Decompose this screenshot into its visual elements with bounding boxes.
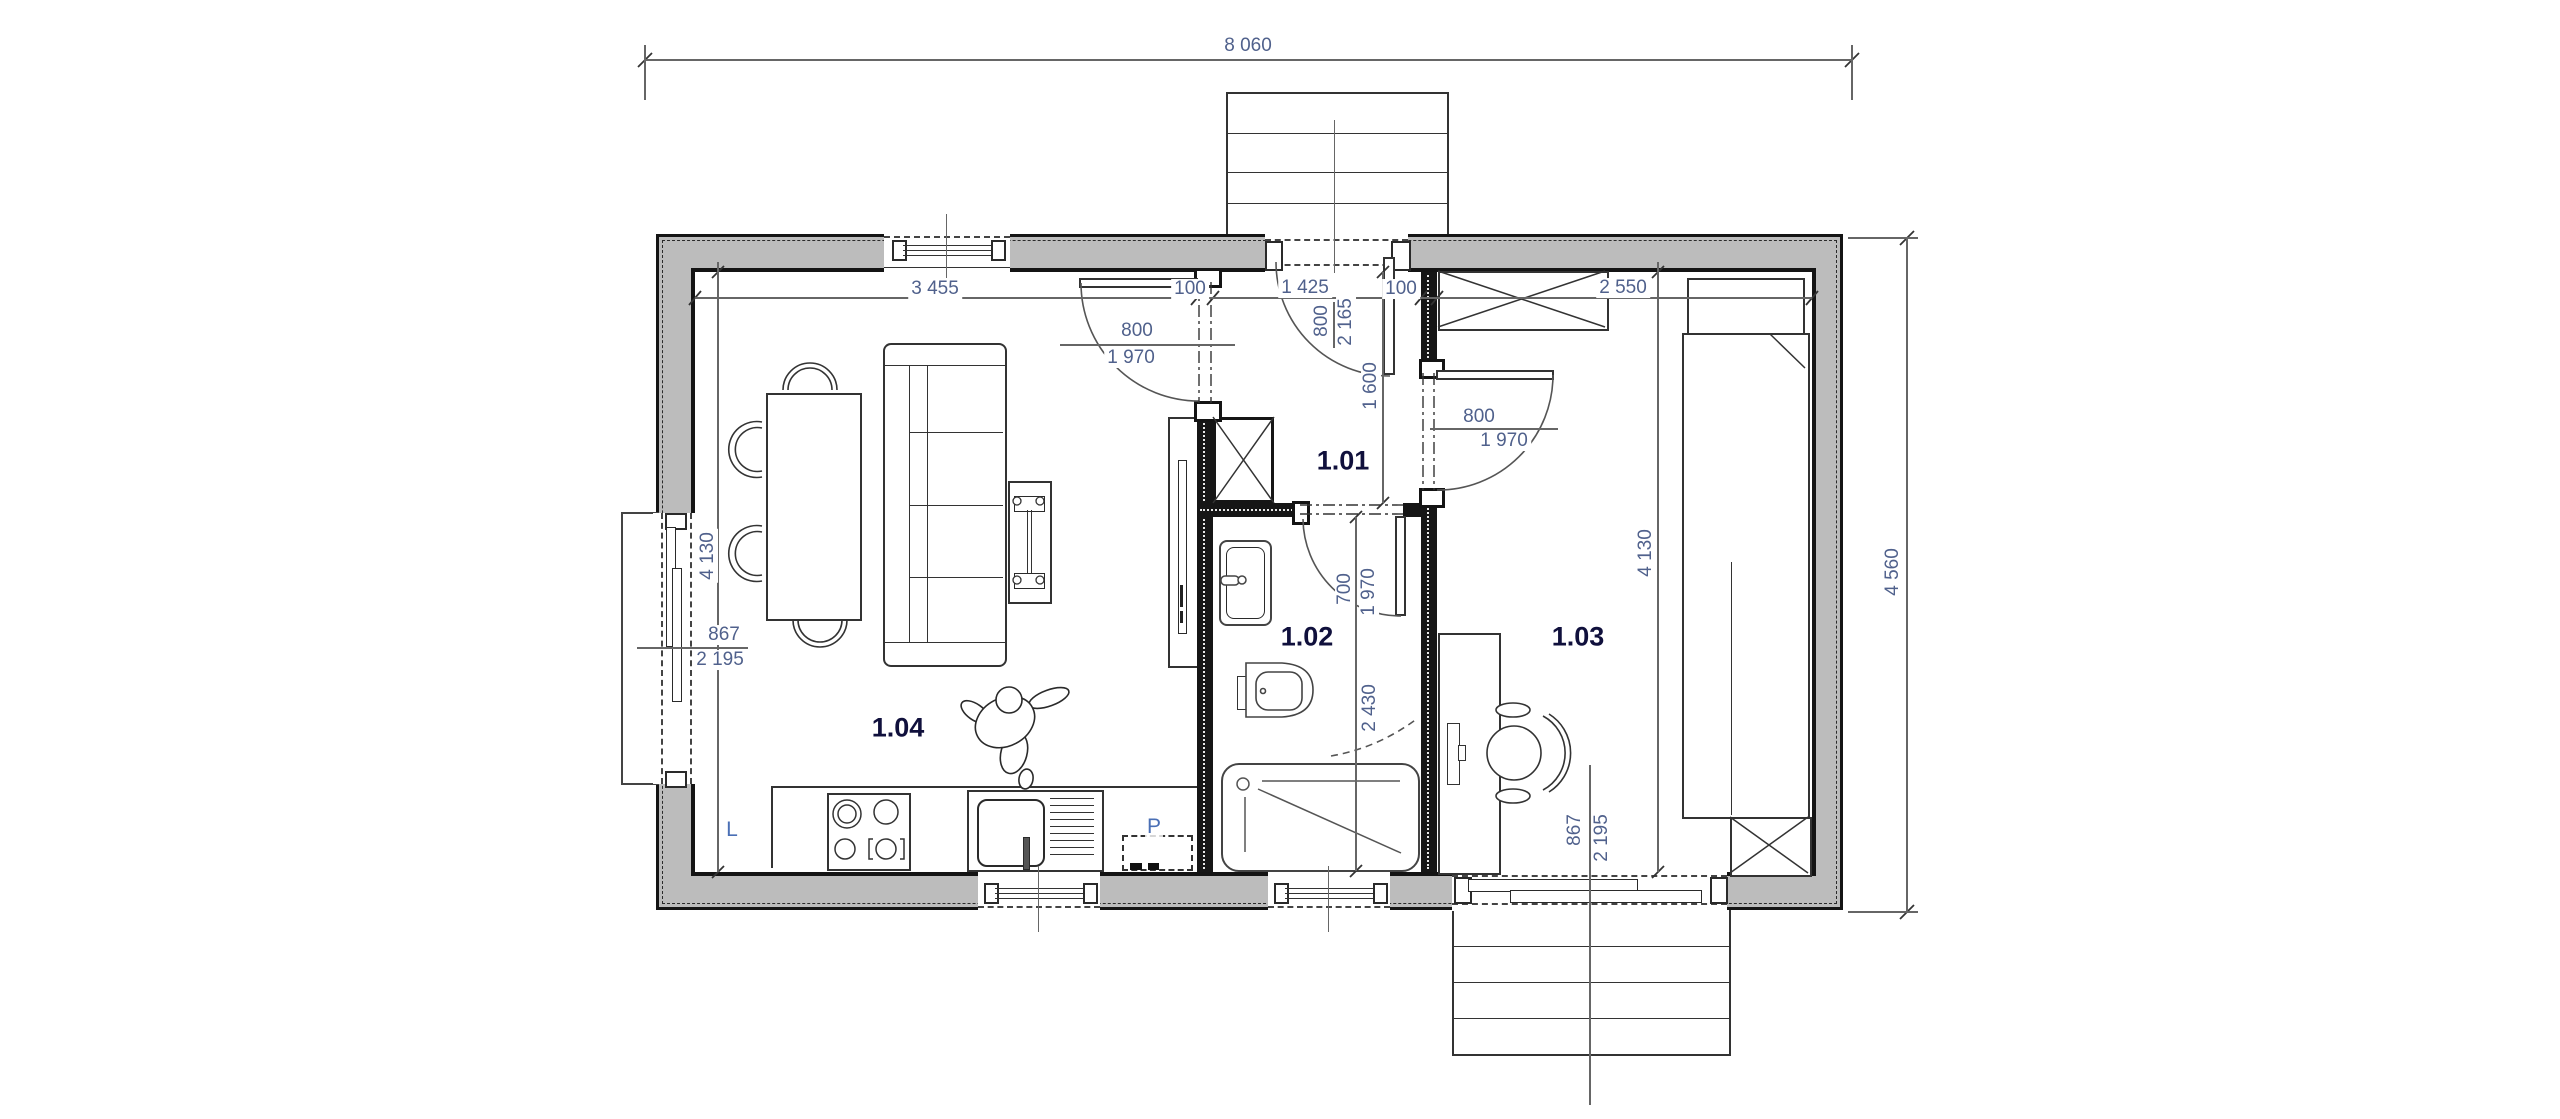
partition-core [1427, 493, 1432, 869]
window-glass-line [903, 255, 991, 256]
dim-bedroom-depth: 4 130 [1636, 526, 1656, 580]
terrace-door-height: 2 195 [1592, 811, 1612, 865]
sofa [883, 343, 1007, 667]
bathroom-window-axis [1328, 866, 1329, 932]
living-window-axis [946, 214, 947, 278]
window-glass-line [995, 893, 1083, 894]
dim-ext-left [644, 45, 646, 100]
terrace-steps [1452, 908, 1731, 1056]
washer-foot [1130, 863, 1142, 870]
washing-machine-dashed [1122, 835, 1193, 871]
dim-partition-right: 100 [1382, 279, 1420, 299]
window-glass-line [995, 898, 1083, 899]
window-sill-line [884, 267, 1010, 268]
cabinet-handle [1180, 585, 1183, 607]
kitchen-window-axis [1038, 866, 1039, 932]
entrance-axis [1334, 120, 1335, 273]
living-door-width: 800 [1118, 321, 1156, 341]
window-glass-line [1285, 898, 1373, 899]
coffee-table-stretcher [1031, 510, 1032, 573]
line-hall-length [1382, 272, 1384, 503]
cabinet-door-panel [1178, 460, 1187, 634]
bathroom-door-width: 700 [1335, 570, 1355, 608]
sink-tap [1023, 837, 1030, 870]
floorplan-canvas: 8 060 4 560 [0, 0, 2560, 1119]
entry-steps [1226, 92, 1449, 239]
bed [1682, 333, 1810, 819]
step-line [1454, 946, 1729, 947]
left-door-height: 2 195 [693, 650, 747, 670]
room-label-living: 1.04 [868, 713, 929, 744]
drainer-line [1050, 805, 1094, 806]
dim-ext-right [1851, 45, 1853, 100]
dim-line-overall-width [645, 59, 1852, 61]
toilet-cistern [1237, 676, 1248, 710]
window-glass-line [903, 250, 991, 251]
step-line [1228, 203, 1447, 204]
dim-overall-width: 8 060 [1221, 36, 1275, 56]
sofa-back-line [909, 365, 910, 642]
fridge-label: L [724, 818, 740, 842]
window-jamb [1083, 883, 1098, 904]
partition-living-hall [1197, 403, 1213, 872]
door-cap [1292, 501, 1310, 525]
dim-bedroom-width: 2 550 [1596, 278, 1650, 298]
window-sill-dash [1268, 906, 1390, 908]
left-door-width: 867 [705, 625, 743, 645]
drainer-line [1050, 847, 1094, 848]
door-panel [672, 568, 682, 702]
drainer-line [1050, 833, 1094, 834]
entrance-jamb [1391, 241, 1411, 271]
entrance-door-opening [1265, 233, 1408, 272]
washbasin [1219, 540, 1272, 626]
partition-hall-bedroom [1421, 272, 1437, 373]
bed-blanket-line [1731, 562, 1732, 815]
dim-overall-depth: 4 560 [1883, 545, 1903, 599]
dim-partition-left: 100 [1171, 279, 1209, 299]
shaft-box [1213, 417, 1274, 503]
sofa-cushion-line [909, 432, 1003, 433]
monitor-stand [1458, 745, 1466, 761]
living-door-height: 1 970 [1104, 348, 1158, 368]
drainer-line [1050, 854, 1094, 855]
dim-line-overall-depth [1906, 238, 1908, 912]
room-label-hall: 1.01 [1313, 446, 1374, 477]
entrance-door-height: 2 165 [1336, 295, 1356, 349]
door-axis-dash [661, 513, 663, 784]
window-glass-line [903, 245, 991, 246]
partition-bath-bedroom [1421, 490, 1437, 872]
coffee-table [1008, 481, 1052, 604]
sofa-cushion-line [909, 577, 1003, 578]
washbasin-bowl [1226, 547, 1265, 619]
chain-line-bedroom-depth [1657, 262, 1659, 872]
bedroom-door-height: 1 970 [1477, 431, 1531, 451]
room-label-bathroom: 1.02 [1277, 622, 1338, 653]
kitchen-counter-line [771, 786, 1197, 788]
coffee-table-bar [1014, 496, 1045, 512]
window-glass-line [1285, 888, 1373, 889]
cabinet-handle [1180, 611, 1183, 623]
window-glass-line [1285, 893, 1373, 894]
window-jamb [1373, 883, 1388, 904]
sofa-back-line [927, 365, 928, 642]
dim-living-depth: 4 130 [698, 529, 718, 583]
drainer-line [1050, 812, 1094, 813]
door-cap [1419, 359, 1445, 379]
entrance-door-width: 800 [1312, 302, 1332, 340]
kitchen-window [978, 871, 1100, 911]
wardrobe-corner [1730, 817, 1812, 877]
window-jamb [991, 240, 1006, 261]
sofa-armrest-line [885, 642, 1005, 643]
window-glass-line [995, 888, 1083, 889]
drainer-line [1050, 798, 1094, 799]
dining-table [766, 393, 862, 621]
door-jamb [1710, 877, 1728, 904]
step-line [1228, 133, 1447, 134]
coffee-table-bar [1014, 573, 1045, 589]
sofa-armrest-line [885, 365, 1005, 366]
sliding-panel [1510, 890, 1702, 903]
sofa-cushion-line [909, 505, 1003, 506]
kitchen-sink-unit [967, 790, 1104, 872]
sink-basin [977, 799, 1045, 867]
dim-bath-length: 2 430 [1360, 681, 1380, 735]
bed-headboard [1687, 278, 1805, 337]
fridge-bay-divider [771, 787, 773, 868]
drainer-line [1050, 826, 1094, 827]
room-label-bedroom: 1.03 [1548, 622, 1609, 653]
bathroom-window [1268, 871, 1390, 911]
door-cap [1194, 401, 1222, 422]
step-line [1228, 172, 1447, 173]
drainer-line [1050, 840, 1094, 841]
step-line [1454, 1018, 1729, 1019]
entrance-axis-dash [1265, 239, 1408, 241]
dim-hall-length: 1 600 [1361, 359, 1381, 413]
door-axis-dash [690, 513, 692, 784]
partition-hall-bath [1197, 503, 1300, 517]
partition-core [1427, 275, 1432, 370]
terrace-door-width: 867 [1565, 811, 1585, 849]
line-bath-length [1355, 517, 1357, 871]
door-cap [1419, 488, 1445, 508]
bedroom-door-width: 800 [1460, 407, 1498, 427]
washer-foot [1148, 863, 1159, 870]
window-lintel-dash [884, 236, 1010, 238]
coffee-table-stretcher [1027, 510, 1028, 573]
entrance-axis-dash [1265, 264, 1408, 266]
dim-ext-bottom-right [1848, 911, 1918, 913]
living-window [884, 233, 1010, 273]
entrance-jamb [1265, 241, 1283, 271]
door-jamb [665, 771, 687, 788]
drainer-line [1050, 819, 1094, 820]
bathroom-door-height: 1 970 [1359, 565, 1379, 619]
washing-machine-label: P [1145, 815, 1163, 839]
cooktop [827, 793, 911, 871]
partition-core [1203, 406, 1208, 869]
living-door-label-bar [1060, 344, 1235, 346]
dim-ext-top-right [1848, 237, 1918, 239]
partition-core [1200, 509, 1297, 514]
window-sill-dash [978, 906, 1100, 908]
left-terrace-door [653, 513, 695, 784]
wardrobe-top [1438, 271, 1609, 331]
dim-living-width: 3 455 [908, 279, 962, 299]
dim-hall-width: 1 425 [1278, 278, 1332, 298]
step-line [1454, 982, 1729, 983]
bathtub [1221, 763, 1420, 872]
